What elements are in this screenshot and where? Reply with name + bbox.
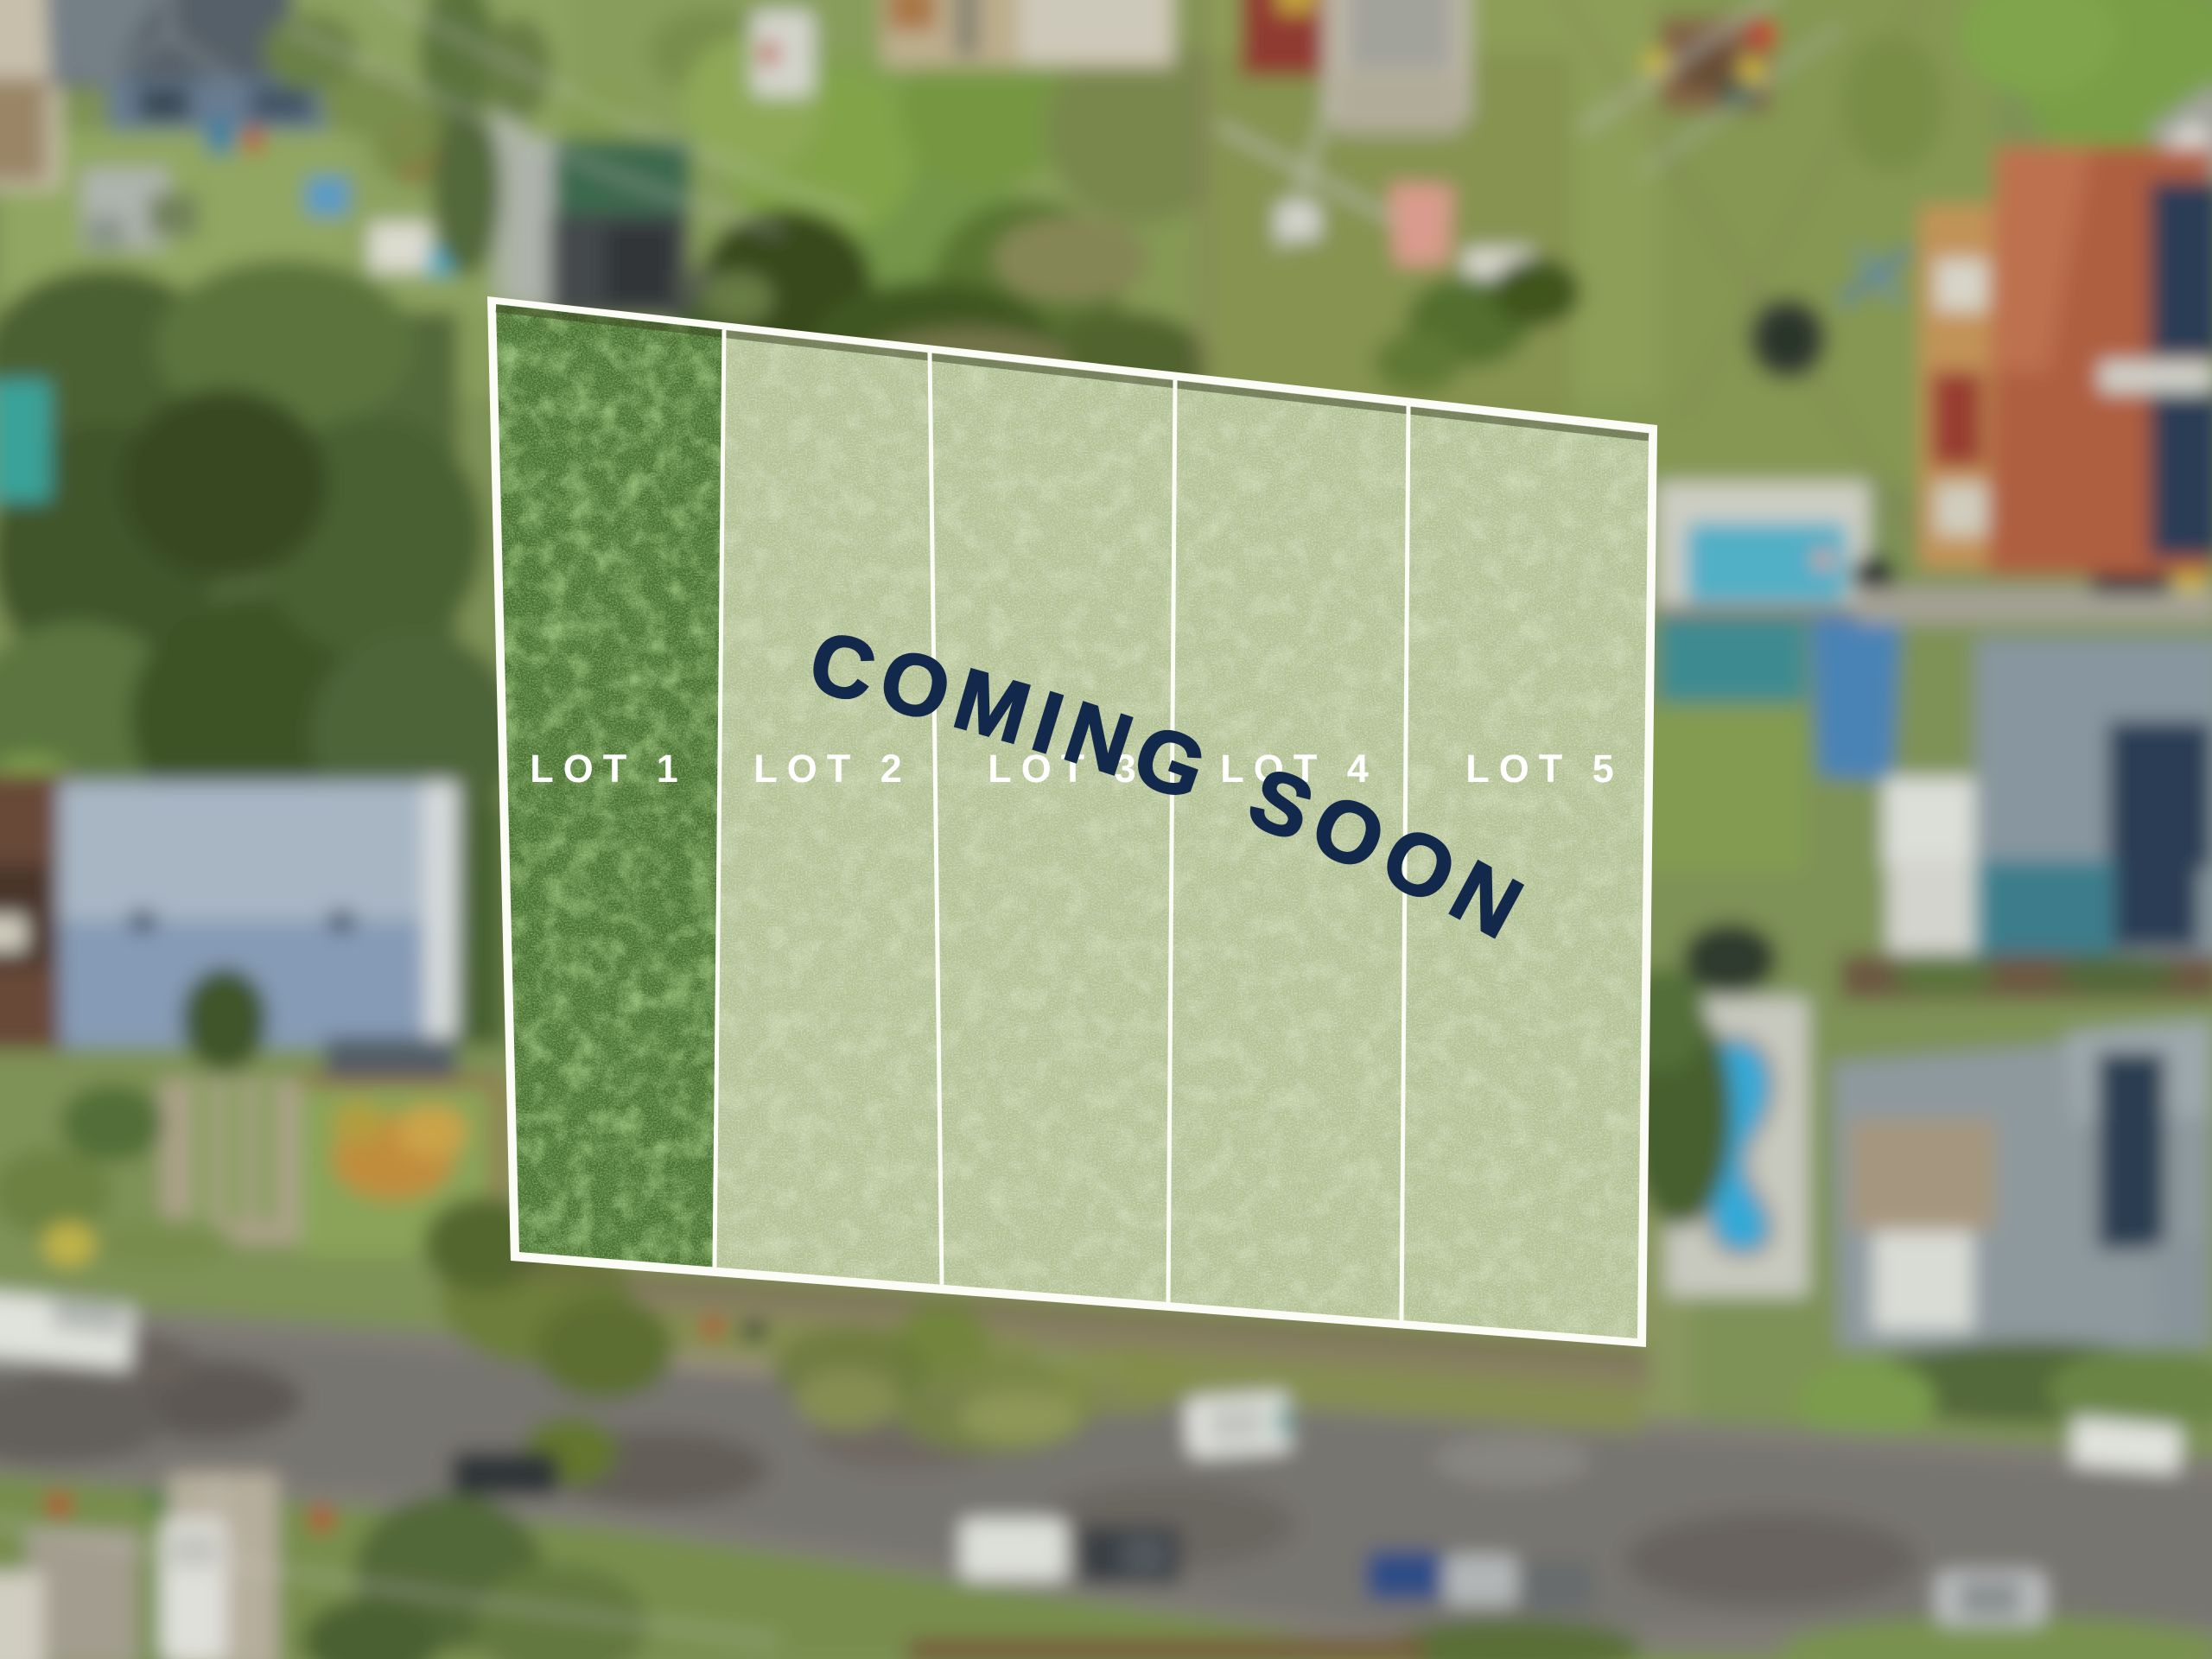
svg-text:LOT 5: LOT 5	[1465, 747, 1624, 791]
svg-text:LOT 1: LOT 1	[530, 747, 688, 791]
svg-text:LOT 2: LOT 2	[753, 747, 912, 791]
